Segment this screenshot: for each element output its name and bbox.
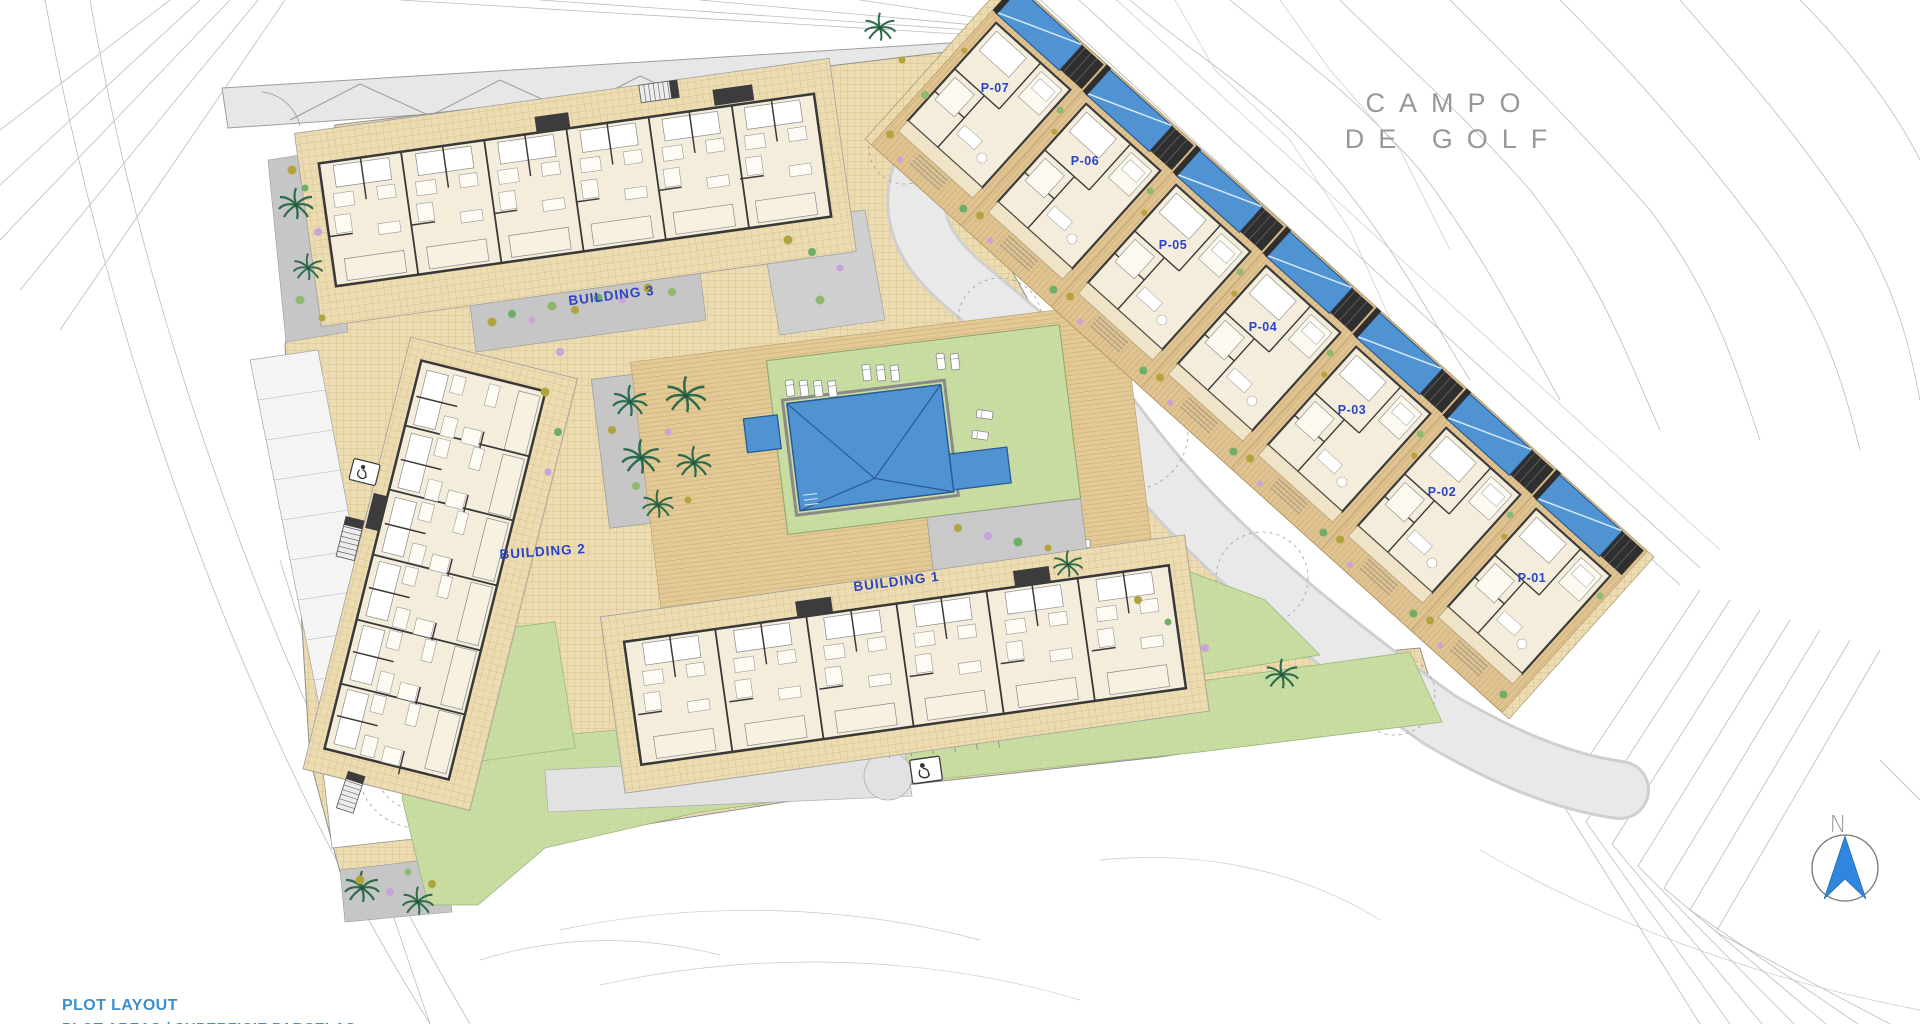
sheet-title-line1: PLOT LAYOUT bbox=[62, 997, 178, 1014]
site-plan-sheet: BUILDING 3 BUILDING 2 BUILDING 1 P-07 P-… bbox=[0, 0, 1920, 1024]
main-swimming-pool bbox=[787, 385, 954, 511]
plot-label-p06: P-06 bbox=[1071, 154, 1099, 168]
plot-label-p03: P-03 bbox=[1338, 403, 1366, 417]
plot-label-p02: P-02 bbox=[1428, 485, 1456, 499]
north-letter: N bbox=[1829, 812, 1846, 838]
golf-course-label-line1: CAMPO bbox=[1365, 88, 1534, 118]
golf-course-label-line2: DE GOLF bbox=[1345, 124, 1562, 154]
plot-label-p05: P-05 bbox=[1159, 238, 1187, 252]
small-pool-west bbox=[743, 415, 781, 453]
sheet-title-line2: PLOT AREAS / SUPERFICIE PARCELAS bbox=[62, 1020, 356, 1024]
plot-label-p01: P-01 bbox=[1518, 571, 1546, 585]
plot-label-p07: P-07 bbox=[981, 81, 1009, 95]
site-plan-drawing: BUILDING 3 BUILDING 2 BUILDING 1 P-07 P-… bbox=[0, 0, 1920, 1024]
accessible-parking-icon bbox=[909, 756, 942, 784]
small-pool-east bbox=[949, 447, 1011, 490]
plot-label-p04: P-04 bbox=[1249, 320, 1277, 334]
